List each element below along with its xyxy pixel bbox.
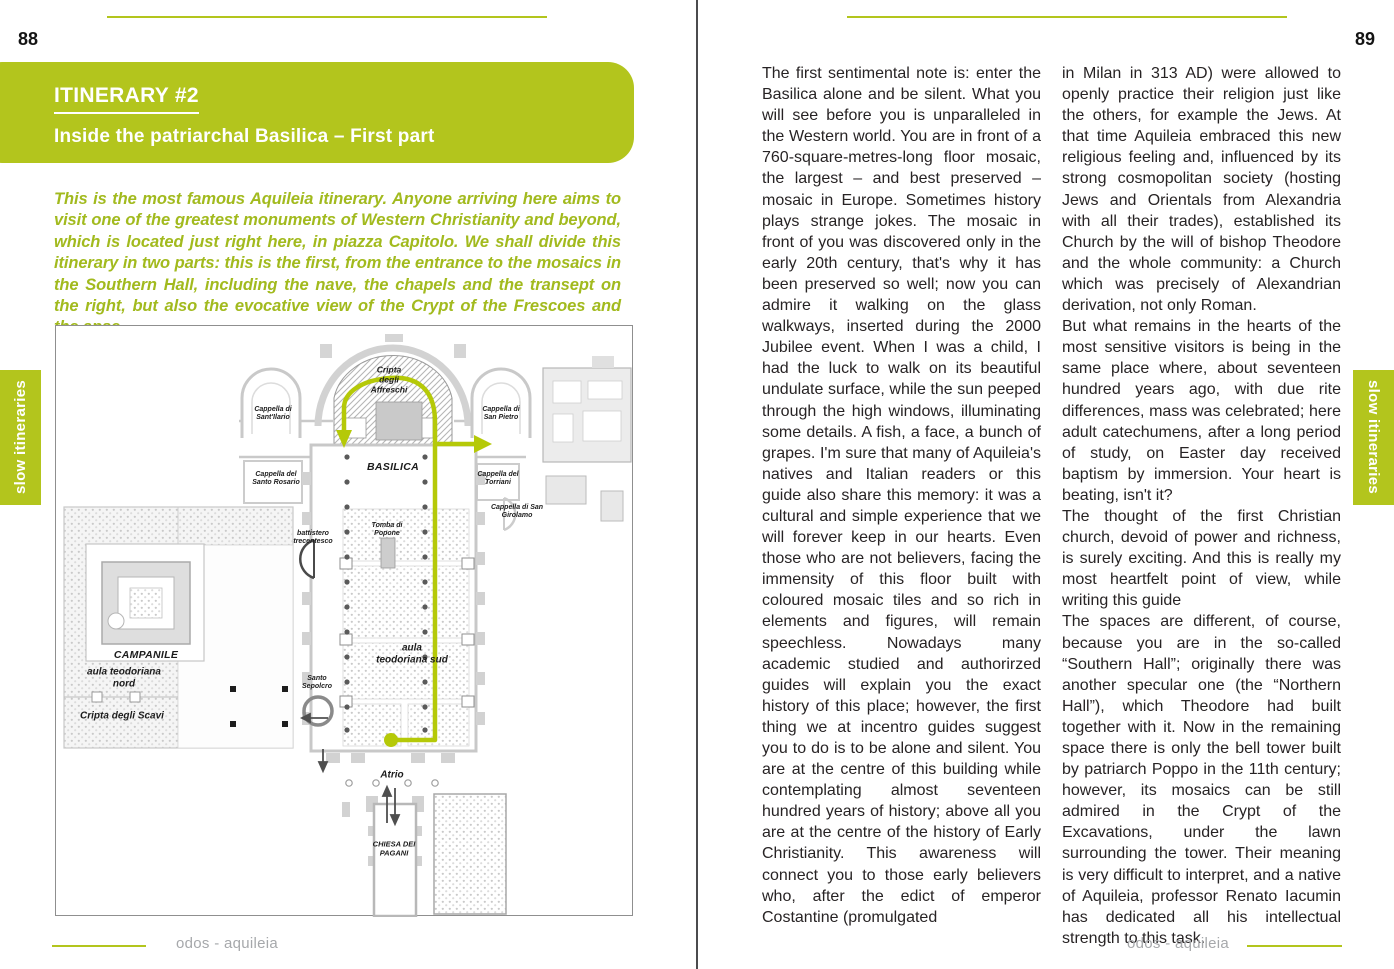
body-paragraph: The thought of the first Christian churc…	[1062, 506, 1341, 611]
map-label-santo-sepolcro: Santo Sepolcro	[298, 675, 336, 691]
footer-rule-left	[52, 945, 146, 947]
map-label-basilica: BASILICA	[367, 461, 419, 473]
footer-text-left: odos - aquileia	[176, 935, 278, 952]
top-rule-right	[847, 16, 1287, 18]
slow-itineraries-tab-right-label: slow itineraries	[1365, 380, 1382, 494]
map-label-aula-teodoriana-sud: aula teodoriana sud	[376, 643, 448, 666]
map-label-campanile: CAMPANILE	[114, 649, 178, 661]
itinerary-title: ITINERARY #2	[54, 84, 199, 114]
ruins-area	[434, 794, 506, 914]
map-label-cappella-sant-ilario: Cappella di Sant'Ilario	[247, 406, 299, 422]
body-column-2: in Milan in 313 AD) were allowed to open…	[1062, 63, 1341, 949]
map-label-cappella-santo-rosario: Cappella del Santo Rosario	[247, 471, 305, 487]
footer-text-right: odos - aquileia	[1127, 935, 1229, 952]
map-label-cappella-san-pietro: Cappella di San Pietro	[475, 406, 527, 422]
map-label-atrio: Atrio	[380, 769, 403, 781]
footer-rule-right	[1247, 945, 1342, 947]
floor-plan-drawing	[56, 326, 634, 917]
slow-itineraries-tab-right: slow itineraries	[1353, 370, 1394, 505]
body-paragraph: in Milan in 313 AD) were allowed to open…	[1062, 63, 1341, 316]
body-column-1: The first sentimental note is: enter the…	[762, 63, 1041, 928]
top-rule-left	[107, 16, 547, 18]
map-label-chiesa-pagani: CHIESA DEI PAGANI	[371, 840, 417, 857]
map-label-cappella-san-girolamo: Cappella di San Girolamo	[486, 504, 548, 520]
body-paragraph: But what remains in the hearts of the mo…	[1062, 316, 1341, 506]
itinerary-header-box: ITINERARY #2 Inside the patriarchal Basi…	[0, 62, 634, 163]
page-number-right: 89	[1355, 29, 1375, 50]
slow-itineraries-tab-left: slow itineraries	[0, 370, 41, 505]
map-label-battistero: battistero trecentesco	[288, 530, 338, 546]
route-start-dot	[384, 733, 398, 747]
map-label-tomba-popone: Tomba di Popone	[366, 522, 408, 538]
itinerary-subtitle: Inside the patriarchal Basilica – First …	[54, 126, 435, 148]
map-label-aula-teodoriana-nord: aula teodoriana nord	[77, 667, 171, 690]
map-label-cripta-scavi: Cripta degli Scavi	[80, 710, 164, 722]
body-paragraph: The first sentimental note is: enter the…	[762, 63, 1041, 928]
tomba-di-popone-shape	[381, 538, 395, 568]
itinerary-intro-paragraph: This is the most famous Aquileia itinera…	[54, 189, 621, 339]
body-paragraph: The spaces are different, of course, bec…	[1062, 611, 1341, 949]
page-number-left: 88	[18, 29, 38, 50]
slow-itineraries-tab-left-label: slow itineraries	[12, 380, 29, 494]
basilica-floor-plan-map: Cripta degli Affreschi Cappella di Sant'…	[55, 325, 633, 916]
map-label-cripta-affreschi: Cripta degli Affreschi	[367, 365, 411, 394]
page-divider	[696, 0, 698, 969]
map-label-cappella-torriani: Cappella del Torriani	[469, 471, 527, 487]
atrium-area	[326, 753, 506, 916]
